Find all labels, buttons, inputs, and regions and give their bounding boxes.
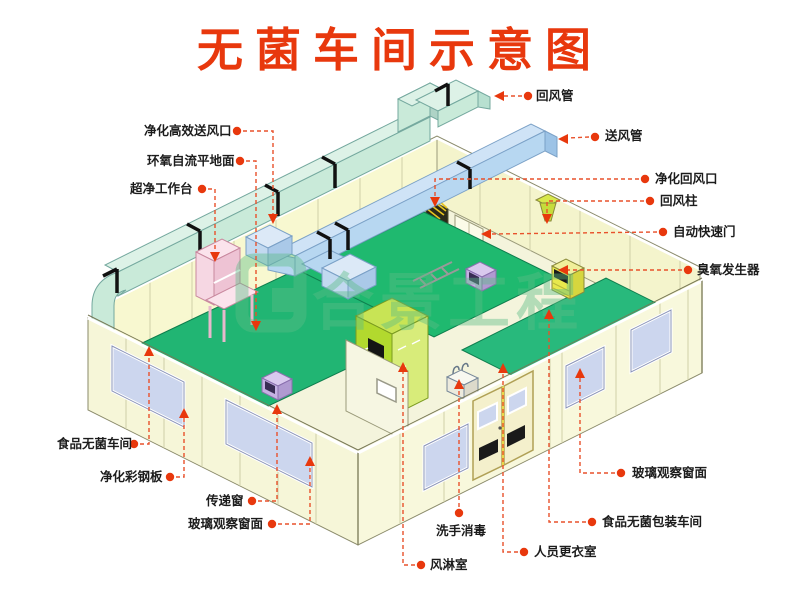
label-hand-wash: 洗手消毒 (436, 524, 486, 538)
page-title: 无菌车间示意图 (197, 14, 603, 80)
label-glass-window-right: 玻璃观察窗面 (632, 466, 707, 480)
label-glass-window-left: 玻璃观察窗面 (188, 517, 263, 531)
door-leaf-right (504, 371, 533, 465)
label-packing-workshop: 食品无菌包装车间 (602, 515, 702, 529)
label-hepa-supply-outlet: 净化高效送风口 (144, 124, 232, 138)
label-ozone-generator: 臭氧发生器 (697, 263, 760, 277)
label-steel-panel: 净化彩钢板 (100, 470, 163, 484)
supply-duct-end (545, 131, 557, 157)
door-knob (498, 426, 501, 429)
label-changing-room: 人员更衣室 (534, 545, 597, 559)
label-air-shower: 风淋室 (430, 558, 468, 572)
label-clean-workbench: 超净工作台 (130, 182, 193, 196)
label-supply-duct: 送风管 (605, 129, 643, 143)
label-food-workshop: 食品无菌车间 (57, 437, 132, 451)
label-return-column: 回风柱 (660, 194, 698, 208)
door-leaf-left (473, 387, 502, 480)
label-pass-window: 传递窗 (206, 494, 244, 508)
label-return-duct: 回风管 (536, 89, 574, 103)
label-epoxy-floor: 环氧自流平地面 (147, 154, 235, 168)
cleanroom-schematic-page: 合景工程 (0, 0, 800, 607)
label-auto-fast-door: 自动快速门 (673, 225, 736, 239)
watermark-text: 合景工程 (312, 266, 584, 339)
label-return-outlet: 净化回风口 (655, 172, 718, 186)
